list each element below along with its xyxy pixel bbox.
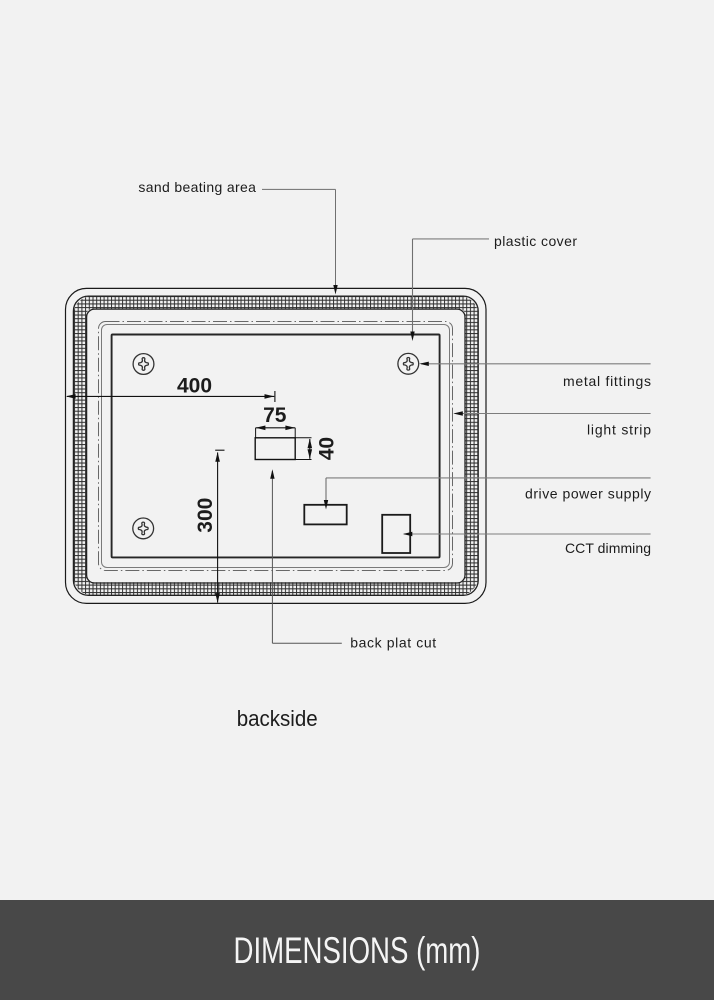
svg-text:sand beating area: sand beating area xyxy=(138,179,256,195)
svg-text:light strip: light strip xyxy=(587,421,651,437)
svg-text:DIMENSIONS (mm): DIMENSIONS (mm) xyxy=(234,930,481,971)
svg-text:back plat cut: back plat cut xyxy=(350,634,436,650)
svg-text:300: 300 xyxy=(194,498,217,533)
svg-text:drive power supply: drive power supply xyxy=(525,485,651,501)
svg-text:400: 400 xyxy=(177,375,212,398)
svg-text:40: 40 xyxy=(316,437,339,460)
svg-text:metal fittings: metal fittings xyxy=(563,373,651,389)
svg-text:plastic cover: plastic cover xyxy=(494,233,577,249)
svg-text:CCT dimming: CCT dimming xyxy=(565,540,651,556)
svg-text:backside: backside xyxy=(237,706,318,731)
svg-text:75: 75 xyxy=(263,404,287,427)
